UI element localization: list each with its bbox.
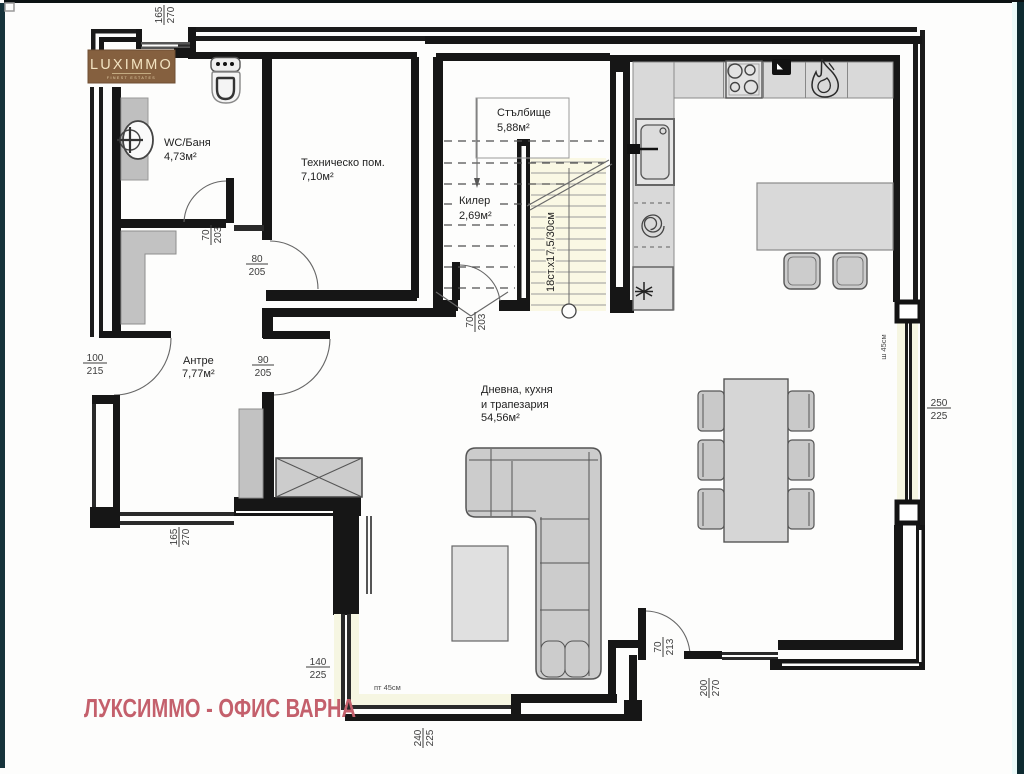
svg-text:205: 205 (255, 368, 272, 379)
svg-text:Стълбище: Стълбище (497, 107, 551, 119)
svg-text:80: 80 (251, 254, 263, 265)
svg-text:7,10м²: 7,10м² (301, 171, 334, 183)
svg-text:203: 203 (477, 313, 488, 330)
svg-text:54,56м²: 54,56м² (481, 412, 520, 424)
svg-text:225: 225 (310, 670, 327, 681)
svg-text:2,69м²: 2,69м² (459, 210, 492, 222)
svg-text:270: 270 (181, 528, 192, 545)
svg-text:пт 45см: пт 45см (374, 683, 401, 692)
svg-text:270: 270 (711, 679, 722, 696)
svg-text:4,73м²: 4,73м² (164, 151, 197, 163)
svg-text:70: 70 (201, 229, 212, 241)
svg-text:270: 270 (166, 6, 177, 23)
svg-text:215: 215 (87, 366, 104, 377)
svg-text:Антре: Антре (183, 355, 214, 367)
svg-text:90: 90 (257, 355, 269, 366)
svg-text:и трапезария: и трапезария (481, 399, 549, 411)
svg-text:140: 140 (310, 657, 327, 668)
svg-text:Килер: Килер (459, 195, 490, 207)
svg-text:165: 165 (154, 6, 165, 23)
svg-text:213: 213 (665, 638, 676, 655)
svg-text:FINEST ESTATES: FINEST ESTATES (107, 76, 156, 80)
svg-text:250: 250 (931, 398, 948, 409)
svg-text:70: 70 (465, 316, 476, 328)
svg-text:5,88м²: 5,88м² (497, 122, 530, 134)
svg-text:18ст.х17,5/30см: 18ст.х17,5/30см (545, 212, 557, 292)
svg-text:ЛУКСИММО - ОФИС ВАРНА: ЛУКСИММО - ОФИС ВАРНА (84, 693, 356, 723)
svg-text:205: 205 (249, 267, 266, 278)
svg-text:240: 240 (413, 729, 424, 746)
svg-text:WC/Баня: WC/Баня (164, 137, 211, 149)
svg-text:100: 100 (87, 353, 104, 364)
svg-text:ш 45см: ш 45см (879, 334, 888, 359)
svg-text:225: 225 (425, 729, 436, 746)
svg-text:LUXIMMO: LUXIMMO (90, 57, 173, 73)
svg-text:70: 70 (653, 641, 664, 653)
svg-text:165: 165 (169, 528, 180, 545)
svg-text:7,77м²: 7,77м² (182, 368, 215, 380)
svg-text:225: 225 (931, 411, 948, 422)
svg-text:Дневна, кухня: Дневна, кухня (481, 384, 553, 396)
svg-text:200: 200 (699, 679, 710, 696)
svg-text:Техническо пом.: Техническо пом. (301, 157, 385, 169)
svg-text:203: 203 (213, 226, 224, 243)
